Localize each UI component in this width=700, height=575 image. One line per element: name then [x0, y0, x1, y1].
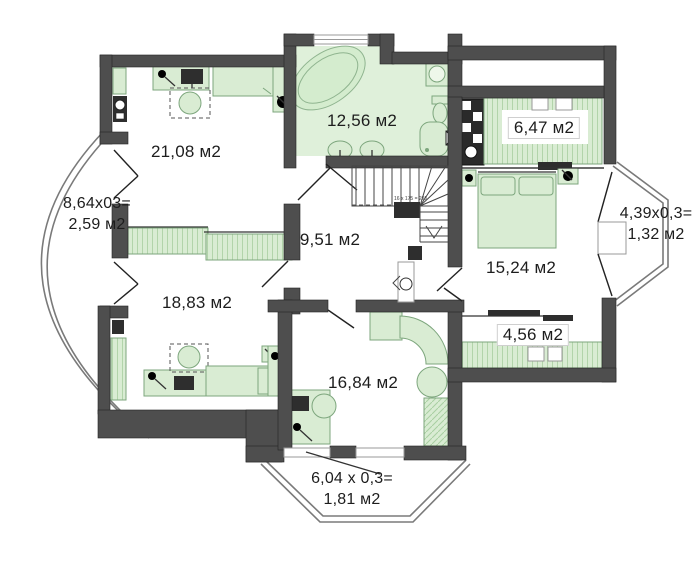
balcony-right-label: 4,39x0,3= 1,32 м2 [620, 203, 693, 245]
desk-computer [153, 66, 209, 90]
partition-wardrobes [126, 227, 292, 260]
balcony-left-line2: 2,59 м2 [63, 214, 131, 235]
toilet [432, 96, 448, 123]
balcony-left-label: 8,64x03= 2,59 м2 [63, 193, 131, 235]
round-table [417, 367, 447, 397]
balcony-door-upper [114, 150, 138, 176]
nightstand [558, 168, 578, 184]
balcony-bottom-label: 6,04 x 0,3= 1,81 м2 [311, 468, 393, 510]
balcony-left-line1: 8,64x03= [63, 193, 131, 214]
wall-wardrobe [111, 320, 126, 400]
balcony-bottom-line2: 1,81 м2 [311, 489, 393, 510]
shower-cabin [420, 122, 448, 156]
desk-chair [170, 344, 208, 372]
bottom-window-right [356, 448, 404, 457]
room-2108-door [298, 168, 330, 200]
corner-sofa [370, 312, 448, 364]
room-label-1684: 16,84 м2 [328, 373, 398, 393]
room-label-647: 6,47 м2 [508, 117, 580, 139]
room-label-bedroom: 15,24 м2 [486, 258, 556, 278]
desk-computer [144, 370, 206, 396]
single-bed [206, 366, 278, 396]
stair-post [394, 202, 420, 218]
room-1883-door [262, 261, 288, 287]
single-bed [213, 66, 293, 112]
room-label-2108: 21,08 м2 [151, 142, 221, 162]
balcony-door-lower [114, 262, 138, 284]
bedroom-door [437, 268, 462, 291]
nightstand [462, 170, 476, 186]
room-1883-furniture [111, 320, 278, 400]
balcony-right-line2: 1,32 м2 [620, 224, 693, 245]
desk-chair [312, 394, 336, 418]
bedroom-loggia-window [462, 310, 573, 321]
desk-chair [170, 88, 210, 118]
room-label-hall: 9,51 м2 [300, 230, 360, 250]
room-label-1883: 18,83 м2 [162, 293, 232, 313]
balcony-bottom-line1: 6,04 x 0,3= [311, 468, 393, 489]
room-label-loggia: 4,56 м2 [497, 324, 569, 346]
room-2108-furniture [113, 66, 293, 122]
double-bed [462, 168, 578, 248]
balcony-right-line1: 4,39x0,3= [620, 203, 693, 224]
stair-note: 16 x 175 = 295 [394, 196, 427, 202]
washbasin [426, 62, 448, 86]
balcony-left-railing [41, 132, 149, 438]
understairs-hatch [393, 246, 422, 302]
floor-plan: 16 x 175 = 295 21,08 м2 12,56 м2 6,47 м2… [0, 0, 700, 575]
room-label-bathroom: 12,56 м2 [327, 111, 397, 131]
staircase: 16 x 175 = 295 [352, 166, 448, 302]
wall-cabinet [113, 68, 127, 122]
room-1684-door [328, 310, 354, 328]
